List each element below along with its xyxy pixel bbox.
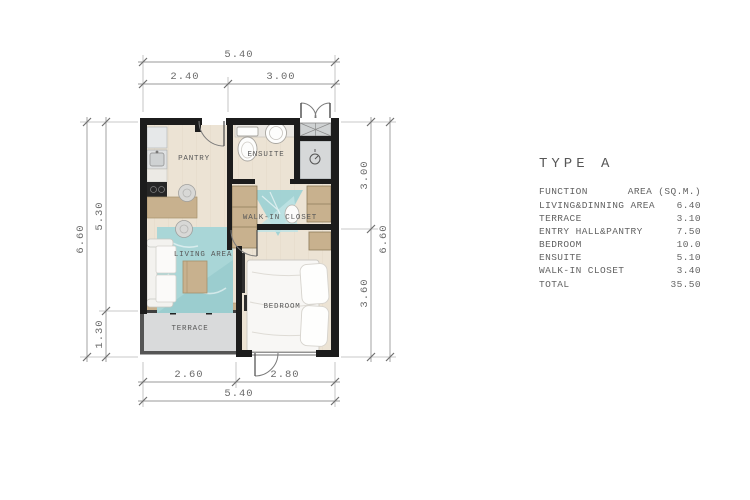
pillow [300, 263, 330, 305]
dim-bottom-seg2: 2.80 [270, 369, 299, 381]
coffee-table [183, 261, 207, 293]
bedroom-window [252, 352, 316, 355]
room-label-ensuite: ENSUITE [247, 151, 284, 159]
sofa [147, 239, 176, 307]
dim-left-total: 6.60 [75, 224, 87, 253]
entry-double-door [301, 103, 330, 118]
shower [300, 141, 331, 179]
dim-bottom-total: 5.40 [224, 388, 253, 400]
legend-row: LIVING&DINNING AREA 6.40 [539, 199, 701, 212]
counter [147, 169, 167, 182]
room-label-pantry: PANTRY [178, 155, 210, 163]
basin [266, 123, 287, 144]
dim-top-seg1: 2.40 [170, 71, 199, 83]
legend-col-area: AREA (SQ.M.) [628, 185, 701, 198]
area-legend: TYPE A FUNCTION AREA (SQ.M.) LIVING&DINN… [539, 156, 701, 291]
terrace-railing-left [140, 314, 144, 354]
dim-left-seg2: 1.30 [94, 319, 106, 348]
legend-row: WALK-IN CLOSET 3.40 [539, 264, 701, 277]
dim-right-seg1: 3.00 [359, 160, 371, 189]
dim-right-seg2: 3.60 [359, 278, 371, 307]
dim-bottom-seg1: 2.60 [174, 369, 203, 381]
legend-header: FUNCTION AREA (SQ.M.) [539, 185, 701, 198]
room-label-bedroom: BEDROOM [263, 303, 300, 311]
dim-top-total: 5.40 [224, 49, 253, 61]
legend-row: ENTRY HALL&PANTRY 7.50 [539, 225, 701, 238]
legend-col-function: FUNCTION [539, 185, 588, 198]
floorplan-page: PANTRY ENSUITE WALK-IN CLOSET LIVING ARE… [0, 0, 750, 500]
stool [179, 185, 196, 202]
terrace-railing-bottom [140, 351, 242, 355]
legend-row: BEDROOM 10.0 [539, 238, 701, 251]
wall-left [140, 118, 147, 314]
dim-top-seg2: 3.00 [266, 71, 295, 83]
legend-title: TYPE A [539, 156, 701, 172]
wall-right [331, 118, 339, 357]
legend-row: TERRACE 3.10 [539, 212, 701, 225]
dim-left-seg1: 5.30 [94, 201, 106, 230]
stool [176, 221, 193, 238]
pillow [300, 305, 329, 346]
room-label-walk-in-closet: WALK-IN CLOSET [243, 214, 317, 222]
fridge [147, 127, 167, 148]
stove [147, 182, 167, 197]
entry-mat [300, 123, 331, 136]
dresser [309, 232, 331, 250]
room-label-living-area: LIVING AREA [174, 251, 232, 259]
legend-row: ENSUITE 5.10 [539, 251, 701, 264]
dim-right-total: 6.60 [378, 224, 390, 253]
room-label-terrace: TERRACE [171, 325, 208, 333]
legend-total-row: TOTAL 35.50 [539, 278, 701, 291]
